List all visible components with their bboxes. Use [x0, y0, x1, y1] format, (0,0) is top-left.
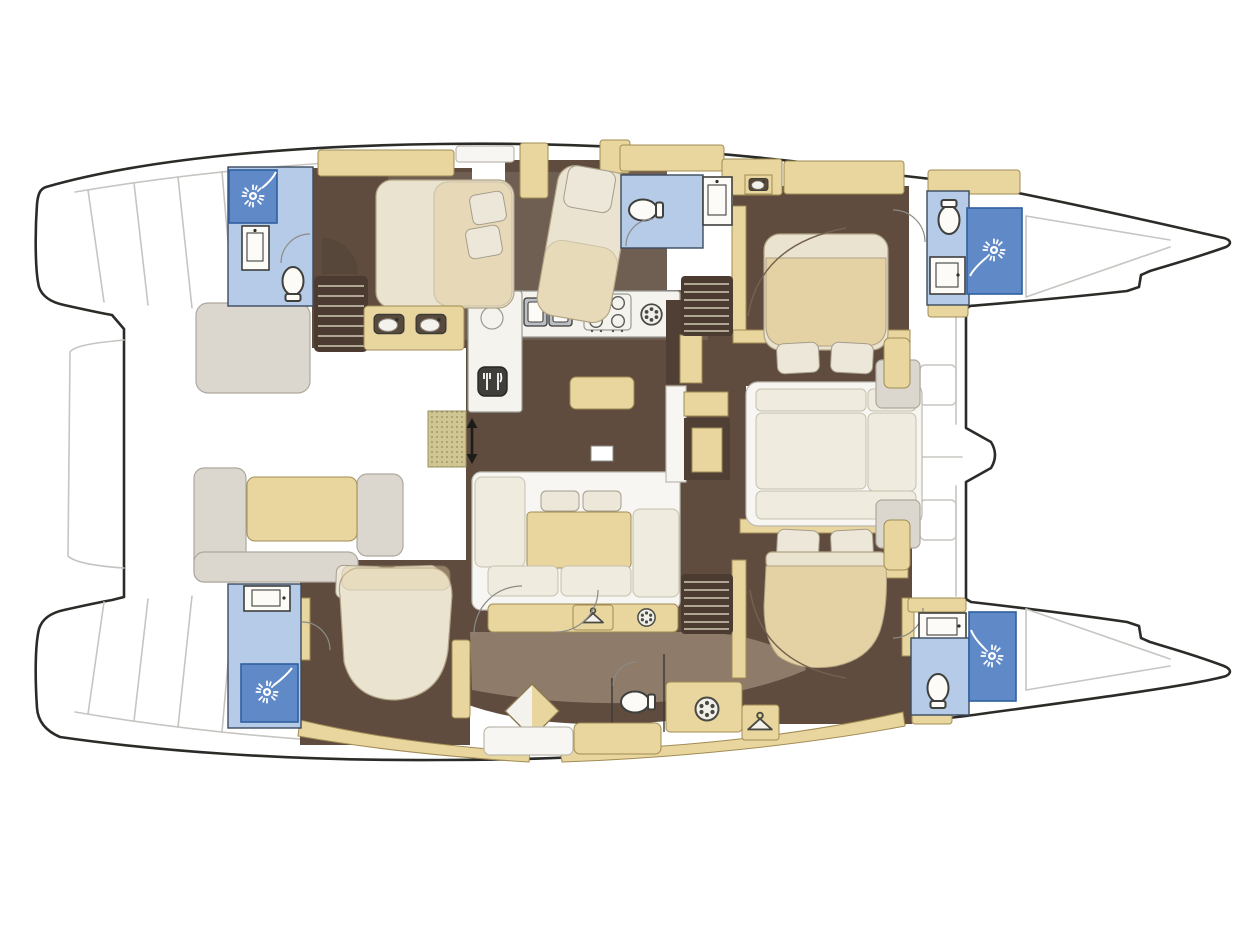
- stairs-port-aft: [314, 276, 368, 352]
- utility-counter: [574, 723, 661, 754]
- porthole-vent-icon: [638, 609, 655, 626]
- washbasin-icon: [749, 178, 768, 190]
- shower-head-icon: [242, 185, 265, 208]
- toilet-icon: [629, 200, 663, 221]
- pillow: [469, 190, 508, 225]
- toilet-icon: [928, 674, 949, 708]
- lounge-cushion: [868, 413, 916, 491]
- pillow: [830, 342, 874, 374]
- cutlery-icon: [478, 367, 507, 396]
- porthole-vent-icon: [641, 304, 662, 325]
- round-sink-icon: [481, 307, 503, 329]
- washing-machine-icon: [666, 682, 742, 732]
- salon-cabinet: [680, 335, 702, 383]
- sofa-left-cushion: [475, 477, 525, 567]
- bathroom-port-aft: [228, 167, 313, 306]
- table-pedestal: [591, 446, 613, 461]
- floor-plan-svg: [0, 0, 1250, 937]
- lounge-cushion: [756, 389, 866, 411]
- shower-head-icon: [983, 239, 1006, 262]
- toilet-icon: [621, 692, 655, 713]
- forward-seat-cushion: [884, 338, 910, 388]
- bathroom-starboard-forward: [911, 612, 1016, 715]
- bed-starboard-aft: [335, 565, 452, 700]
- wardrobe-hanger: [742, 705, 779, 740]
- salon-table: [570, 377, 634, 409]
- lounge-cushion: [756, 413, 866, 489]
- cockpit-dining-table: [247, 477, 357, 541]
- aft-platform-lines: [68, 340, 124, 568]
- stairs-starboard-forward: [681, 574, 733, 634]
- toilet-icon: [283, 267, 304, 301]
- salon-sideboard: [488, 604, 678, 632]
- cockpit-aft-bench: [194, 552, 358, 582]
- bed-port-aft: [376, 180, 514, 308]
- cockpit-forward-bench: [196, 303, 310, 393]
- bathroom-port-forward: [927, 191, 1022, 305]
- cabin-starboard-aft: [335, 565, 452, 700]
- pillow: [776, 342, 820, 374]
- pillow: [465, 224, 504, 259]
- tv-cabinet: [666, 386, 730, 482]
- washbasin-icon: [416, 314, 446, 333]
- sofa-bottom-cushion: [561, 566, 631, 596]
- sofa-back-pillow: [541, 491, 579, 511]
- stairs-port-forward: [681, 276, 733, 336]
- vanity-double-basin: [364, 306, 464, 350]
- companionway-mat: [428, 411, 466, 467]
- shower-head-icon: [981, 645, 1004, 668]
- washbasin-icon: [374, 314, 404, 333]
- sofa-center-ottoman: [527, 512, 631, 568]
- cockpit-backrest: [357, 474, 403, 556]
- pillow: [562, 164, 617, 214]
- floor-plan-scene: [0, 0, 1250, 937]
- sofa-back-pillow: [583, 491, 621, 511]
- toilet-icon: [939, 200, 960, 234]
- utility-counter: [484, 727, 573, 755]
- sofa-right-cushion: [633, 509, 679, 597]
- forward-seat-cushion: [884, 520, 910, 570]
